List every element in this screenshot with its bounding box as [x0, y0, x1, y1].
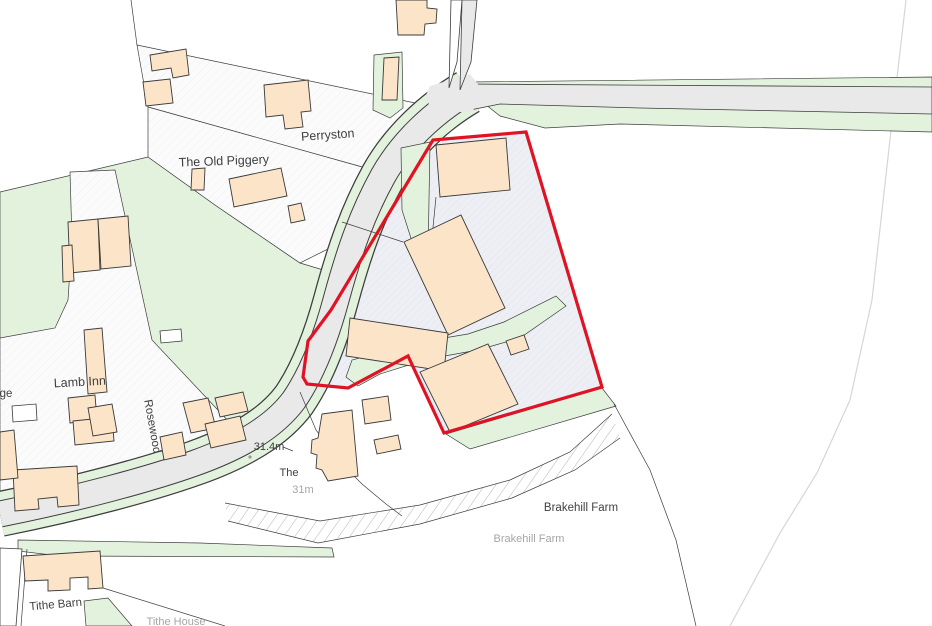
- outbuilding-1: [160, 329, 182, 343]
- building-9: [98, 216, 131, 269]
- building-1: [382, 57, 399, 100]
- building-10: [62, 245, 74, 282]
- map-label-31-4m: 31.4m: [254, 441, 285, 453]
- building-17: [160, 432, 186, 460]
- outbuilding-0: [12, 404, 37, 422]
- map-label-lamb-inn: Lamb Inn: [53, 374, 106, 391]
- building-21: [436, 138, 510, 197]
- map-label-brakehill-farm: Brakehill Farm: [494, 533, 565, 545]
- map-label-31m: 31m: [292, 484, 313, 496]
- map-canvas[interactable]: PerrystonThe Old PiggeryLamb InnRosewood…: [0, 0, 932, 626]
- bench-mark-dot: [248, 455, 251, 458]
- map-screenshot: PerrystonThe Old PiggeryLamb InnRosewood…: [0, 0, 932, 626]
- building-27: [362, 396, 391, 424]
- building-16: [88, 404, 117, 436]
- building-3: [143, 79, 173, 106]
- building-5: [191, 168, 205, 190]
- map-label-ge: ge: [0, 388, 12, 400]
- map-label-brakehill-farm: Brakehill Farm: [544, 502, 618, 514]
- map-label-the: The: [280, 467, 299, 479]
- map-label-tithe-house: Tithe House: [147, 616, 206, 626]
